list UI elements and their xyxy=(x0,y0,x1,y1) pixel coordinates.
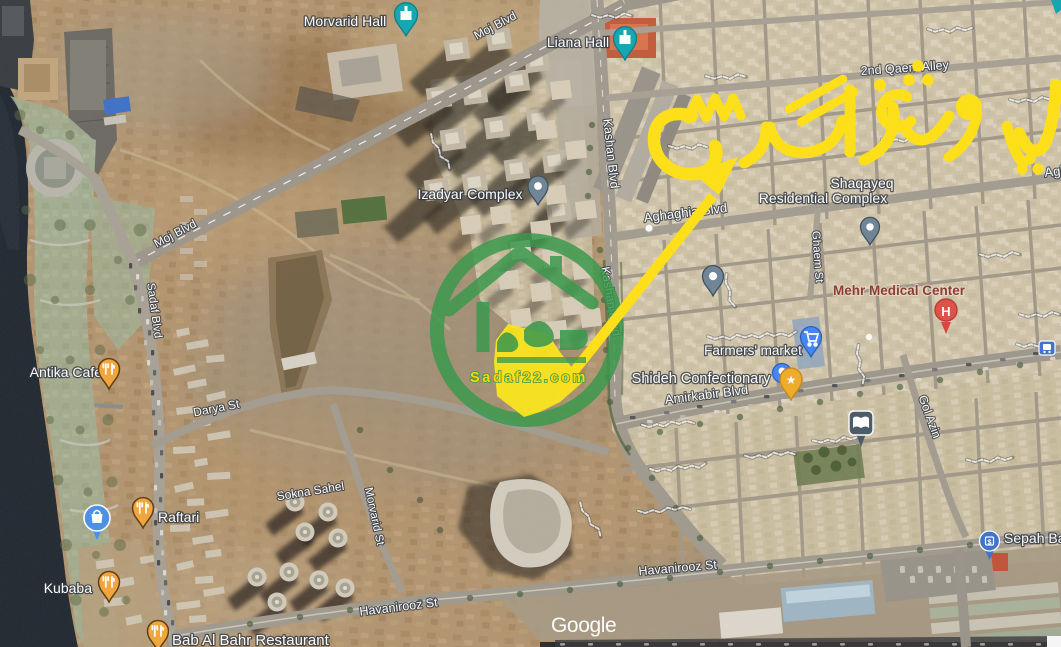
svg-text:Google: Google xyxy=(551,614,616,637)
